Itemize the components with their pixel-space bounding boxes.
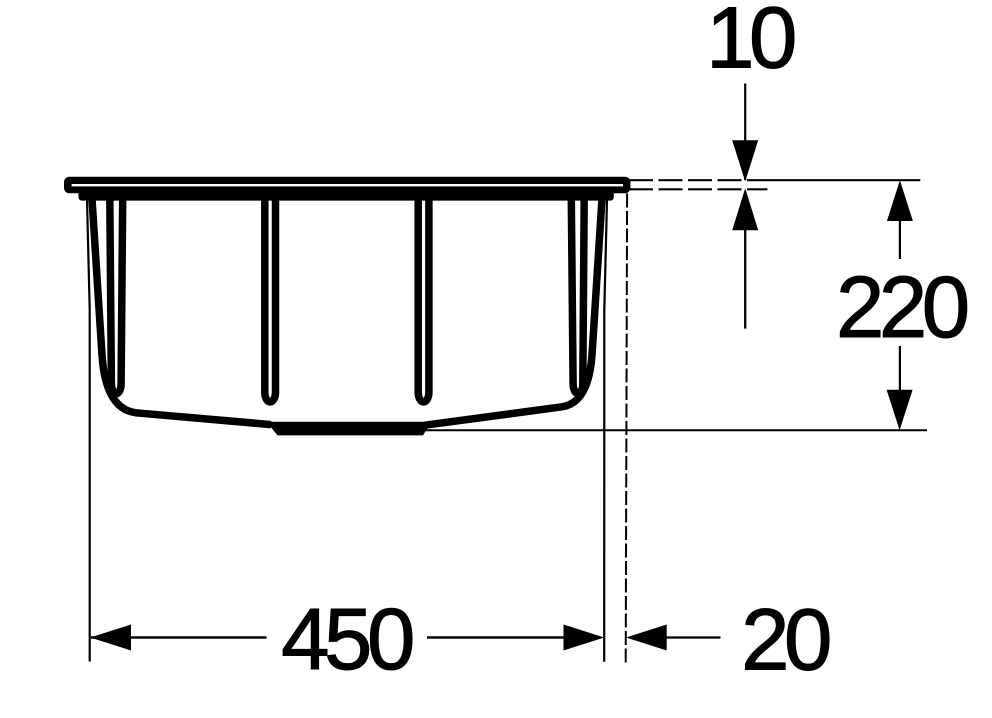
svg-text:20: 20 [741,591,829,688]
svg-text:450: 450 [281,591,412,688]
svg-text:10: 10 [706,0,794,87]
svg-text:220: 220 [836,259,967,356]
